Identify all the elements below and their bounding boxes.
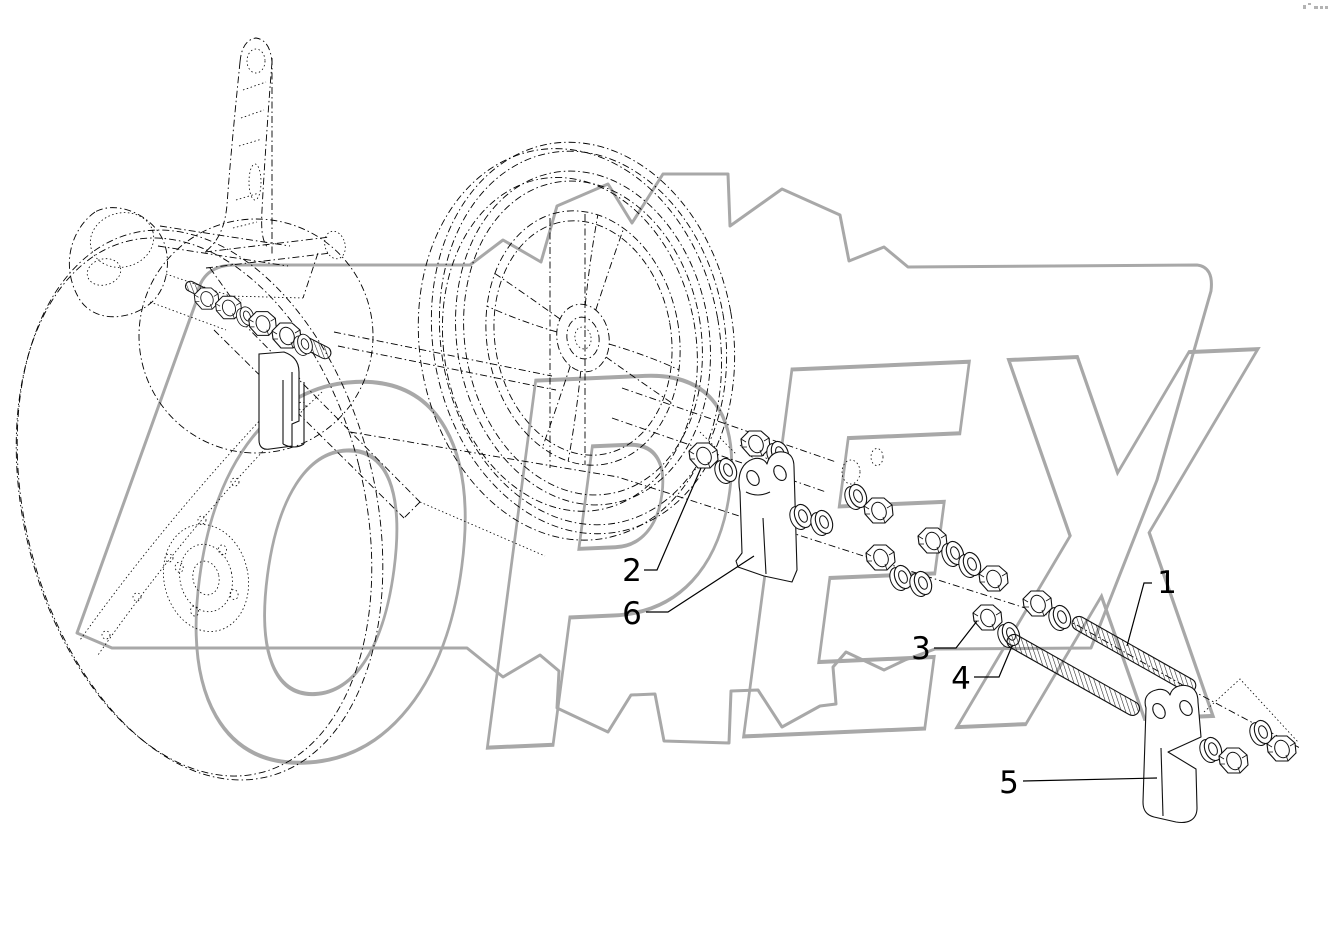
corner-mark bbox=[1303, 3, 1328, 9]
upper-arm bbox=[205, 38, 348, 298]
callout-4-label: 4 bbox=[951, 661, 971, 697]
hex-nut bbox=[1267, 736, 1296, 761]
callout-6-label: 6 bbox=[622, 596, 642, 632]
callout-1-label: 1 bbox=[1157, 565, 1177, 601]
callout-2-label: 2 bbox=[622, 553, 642, 589]
parts-diagram-page: OPEX bbox=[0, 0, 1333, 943]
parts-diagram-canvas: OPEX bbox=[0, 0, 1333, 943]
hex-nut bbox=[1219, 748, 1248, 773]
callout-5-label: 5 bbox=[999, 765, 1019, 801]
callout-3-label: 3 bbox=[911, 631, 931, 667]
